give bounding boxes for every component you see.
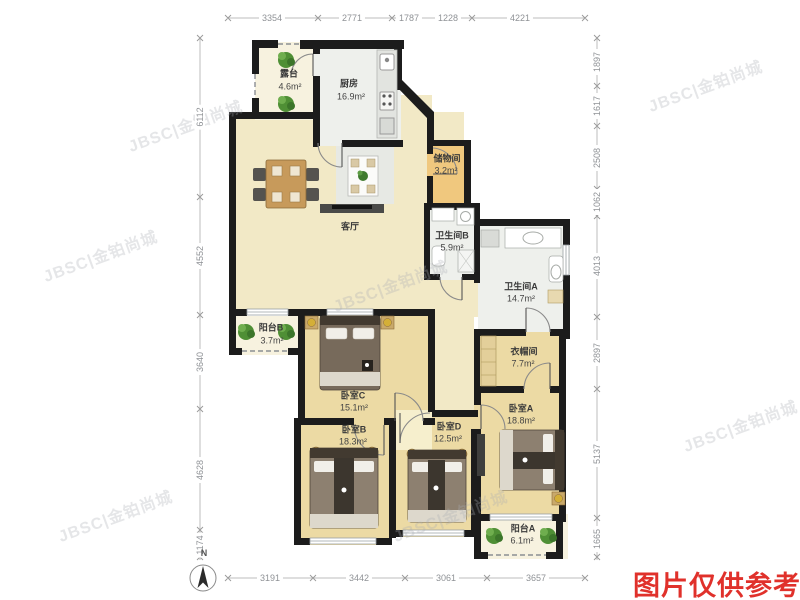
reference-only-note: 图片仅供参考 — [633, 564, 800, 600]
kitchen-counter-icon — [377, 50, 397, 138]
window-bath-a — [563, 245, 569, 275]
room-label-balcony-b: 阳台B — [259, 324, 284, 333]
room-label-living: 客厅 — [341, 223, 359, 232]
window-balcony-b-top — [247, 309, 288, 315]
room-label-terrace: 露台 — [280, 70, 298, 79]
room-label-closet: 衣帽间 — [510, 348, 537, 357]
dim-bottom-2: 3442 — [346, 573, 372, 583]
room-label-bed-d: 卧室D — [437, 423, 462, 432]
floor-plan-page: JBSC|金铂尚城 JBSC|金铂尚城 JBSC|金铂尚城 JBSC|金铂尚城 … — [0, 0, 800, 600]
dim-right-3: 2508 — [592, 145, 602, 171]
room-area-balcony-b: 3.7m² — [260, 337, 283, 346]
dim-right-6: 2897 — [592, 340, 602, 366]
room-label-kitchen: 厨房 — [340, 80, 358, 89]
compass-icon — [190, 565, 216, 591]
floor-plan-drawing — [0, 0, 800, 600]
room-label-bed-b: 卧室B — [342, 426, 367, 435]
dim-top-5: 4221 — [507, 13, 533, 23]
dim-bottom-4: 3657 — [523, 573, 549, 583]
dim-top-4: 1228 — [435, 13, 461, 23]
room-label-bath-b: 卫生间B — [435, 232, 469, 241]
dim-left-3: 3640 — [195, 349, 205, 375]
room-area-balcony-a: 6.1m² — [510, 537, 533, 546]
window-bed-a-balcony — [490, 514, 552, 520]
dim-top-2: 2771 — [339, 13, 365, 23]
dim-right-8: 1665 — [592, 526, 602, 552]
dim-right-2: 1617 — [592, 93, 602, 119]
room-area-bed-a: 18.8m² — [507, 417, 535, 426]
island-table-icon — [348, 156, 378, 196]
window-bed-b — [310, 538, 376, 544]
room-area-bed-c: 15.1m² — [340, 404, 368, 413]
dim-right-7: 5137 — [592, 441, 602, 467]
dim-top-3: 1787 — [396, 13, 422, 23]
room-area-bed-b: 18.3m² — [339, 438, 367, 447]
room-area-bath-b: 5.9m² — [440, 244, 463, 253]
dim-left-2: 4552 — [195, 243, 205, 269]
dim-left-1: 6112 — [195, 104, 205, 129]
room-area-bed-d: 12.5m² — [434, 435, 462, 444]
bed-d-icon — [407, 449, 467, 522]
wardrobe-icon — [481, 336, 496, 386]
room-label-storage: 储物间 — [433, 155, 460, 164]
window-bed-d — [403, 530, 464, 536]
room-area-terrace: 4.6m² — [278, 83, 301, 92]
dim-right-1: 1897 — [592, 49, 602, 75]
dim-right-4: 1062 — [592, 189, 602, 215]
window-bed-c — [327, 309, 373, 315]
room-area-kitchen: 16.9m² — [337, 93, 365, 102]
dim-bottom-1: 3191 — [257, 573, 283, 583]
dim-left-4: 4628 — [195, 457, 205, 483]
room-label-bath-a: 卫生间A — [504, 283, 538, 292]
room-label-bed-c: 卧室C — [341, 392, 366, 401]
tv-console-icon — [320, 204, 384, 213]
dim-bottom-3: 3061 — [433, 573, 459, 583]
compass-north-label: N — [201, 548, 208, 558]
room-label-bed-a: 卧室A — [509, 405, 534, 414]
room-area-storage: 3.2m² — [434, 167, 457, 176]
room-area-closet: 7.7m² — [511, 360, 534, 369]
dim-top-1: 3354 — [259, 13, 285, 23]
bed-b-icon — [310, 447, 378, 528]
room-label-balcony-a: 阳台A — [511, 525, 536, 534]
dim-right-5: 4013 — [592, 253, 602, 279]
room-area-bath-a: 14.7m² — [507, 295, 535, 304]
